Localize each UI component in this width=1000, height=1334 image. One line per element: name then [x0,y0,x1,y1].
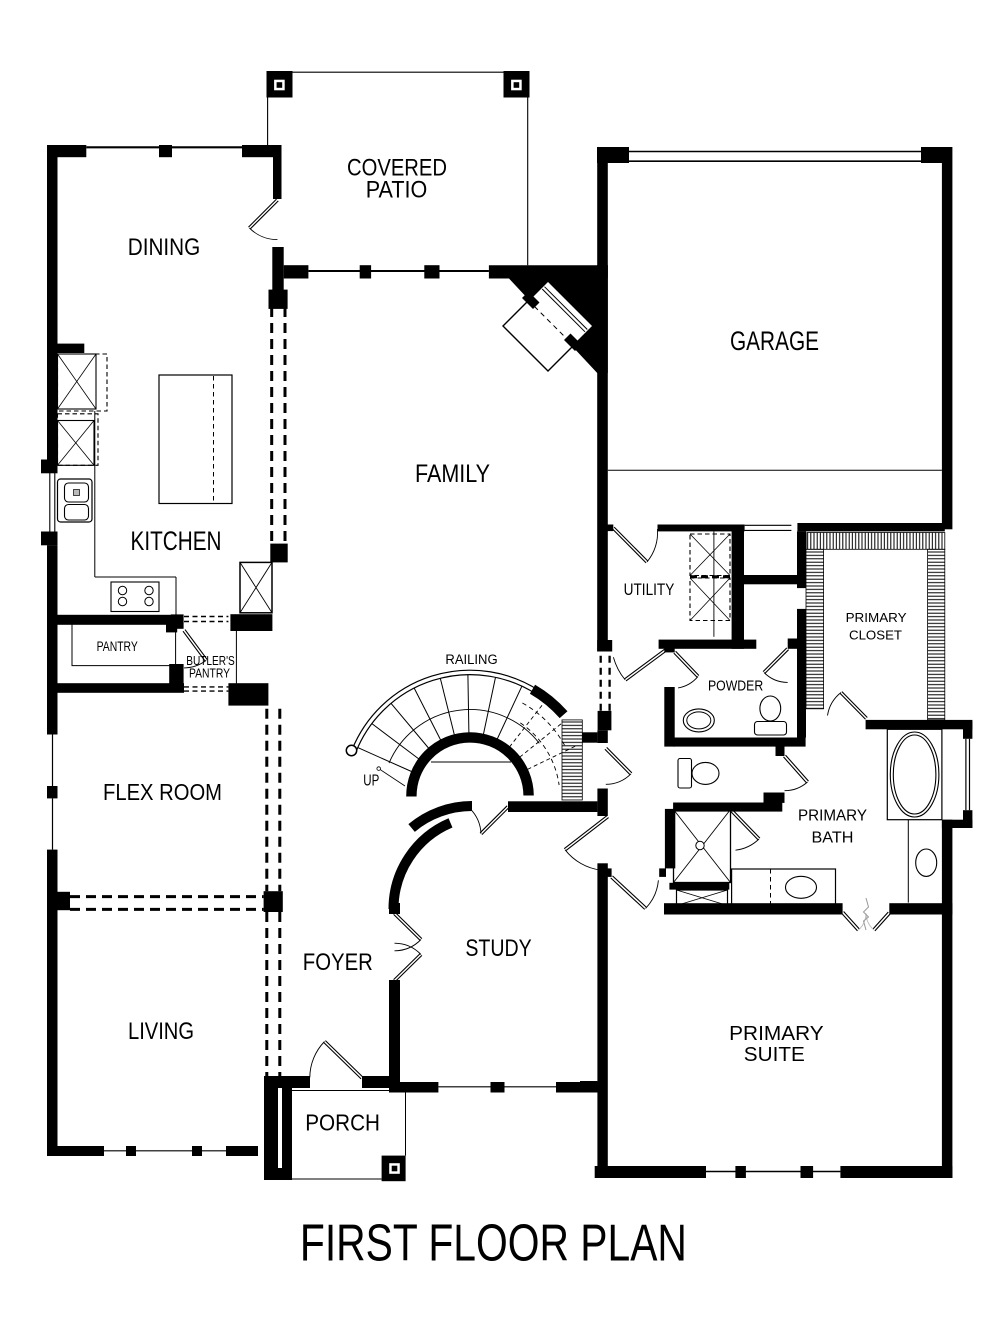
svg-text:FOYER: FOYER [303,950,373,976]
svg-text:STUDY: STUDY [465,936,531,962]
svg-text:UP: UP [363,772,379,789]
svg-text:SUITE: SUITE [744,1043,805,1066]
svg-text:FIRST FLOOR PLAN: FIRST FLOOR PLAN [300,1215,687,1273]
svg-text:PRIMARY: PRIMARY [729,1022,824,1045]
svg-text:DINING: DINING [128,234,201,261]
svg-text:PANTRY: PANTRY [189,667,230,681]
svg-text:UTILITY: UTILITY [624,581,675,599]
svg-text:POWDER: POWDER [708,679,763,695]
svg-text:PRIMARY: PRIMARY [798,807,867,824]
svg-text:FLEX ROOM: FLEX ROOM [103,779,222,805]
svg-text:KITCHEN: KITCHEN [131,526,222,556]
svg-text:LIVING: LIVING [128,1019,194,1045]
svg-text:GARAGE: GARAGE [730,326,819,356]
svg-text:RAILING: RAILING [445,651,497,667]
svg-text:BATH: BATH [812,829,854,846]
svg-text:PANTRY: PANTRY [97,639,138,654]
svg-text:CLOSET: CLOSET [849,628,902,642]
svg-text:PORCH: PORCH [305,1110,380,1136]
svg-text:FAMILY: FAMILY [415,460,490,488]
svg-text:PRIMARY: PRIMARY [846,611,908,625]
svg-text:PATIO: PATIO [366,177,428,204]
